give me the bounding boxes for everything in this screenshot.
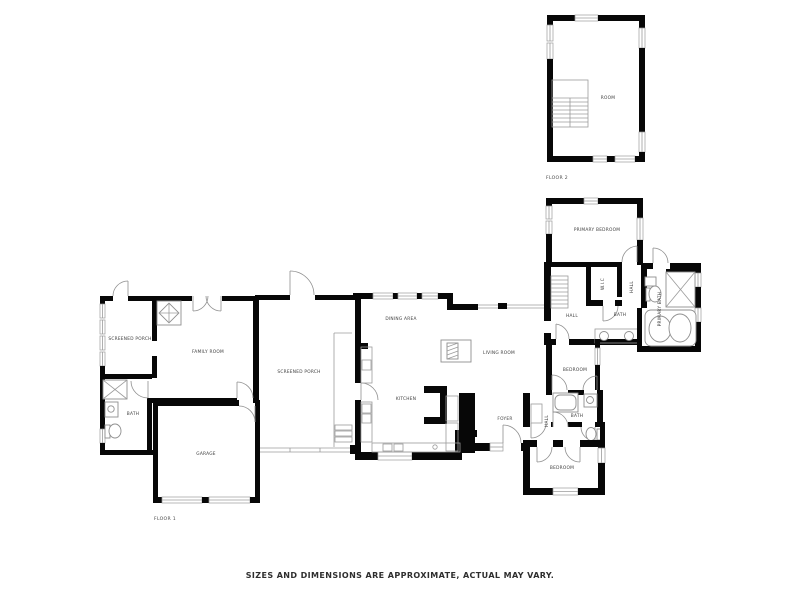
- toilet-bedrooms: [586, 428, 601, 441]
- tub-bedrooms: [553, 393, 578, 412]
- stair-hall-walls: [544, 262, 551, 345]
- room-label-living-room: LIVING ROOM: [483, 350, 515, 356]
- hall-bedrooms-area: [523, 393, 546, 438]
- room-label-bedroom-middle: BEDROOM: [563, 367, 587, 373]
- room-label-foyer: FOYER: [497, 416, 512, 422]
- tub-primary: [645, 310, 696, 346]
- hall-closet: [531, 404, 546, 438]
- room-label-primary-bedroom: PRIMARY BEDROOM: [574, 227, 620, 233]
- room-label-hall-stairs: HALL: [566, 313, 578, 319]
- disclaimer-text: SIZES AND DIMENSIONS ARE APPROXIMATE, AC…: [246, 571, 554, 580]
- screened-porch-west-walls: [100, 281, 157, 379]
- room-label-wic: W.I.C: [600, 278, 606, 290]
- room-label-family-room: FAMILY ROOM: [192, 349, 224, 355]
- floor-plan-svg: ROOM FLOOR 2 SCREENED PORCH: [0, 0, 800, 600]
- floor-plan-page: ROOM FLOOR 2 SCREENED PORCH: [0, 0, 800, 600]
- toilet-west: [105, 424, 121, 438]
- floor1-stairs: [551, 276, 568, 308]
- room-label-floor2-room: ROOM: [601, 95, 615, 101]
- room-label-bedroom-south: BEDROOM: [550, 465, 574, 471]
- shower-primary: [666, 269, 695, 307]
- floor2-plan: ROOM FLOOR 2: [546, 15, 645, 181]
- screened-porch-center: SCREENED PORCH: [255, 271, 361, 454]
- room-label-kitchen: KITCHEN: [396, 396, 416, 402]
- fireplace-living-room: [441, 340, 471, 362]
- floor2-walls: [547, 15, 645, 162]
- bedroom-wing: BEDROOM BATH: [523, 339, 605, 495]
- great-room-walls: [353, 293, 544, 460]
- bath-hall-area: [544, 324, 641, 345]
- room-label-screened-porch-west: SCREENED PORCH: [108, 336, 151, 342]
- room-label-bath-hall: BATH: [614, 312, 626, 318]
- west-wing: SCREENED PORCH FAMILY ROOM: [100, 281, 260, 522]
- fireplace-family-room: [157, 301, 181, 325]
- floor1-caption: FLOOR 1: [154, 516, 176, 522]
- primary-suite: PRIMARY BEDROOM HALL W.I.C HALL: [544, 198, 701, 352]
- room-label-primary-bath: PRIMARY BATH: [657, 292, 663, 327]
- sink-west: [105, 402, 118, 417]
- floor2-stairs: [552, 80, 588, 127]
- sink-bedrooms: [584, 394, 597, 407]
- shower-west: [103, 380, 127, 399]
- room-label-dining-area: DINING AREA: [385, 316, 416, 322]
- great-room: DINING AREA KITCHEN LIVING ROOM: [353, 293, 544, 460]
- bath-bedrooms-area: [551, 393, 605, 447]
- primary-bath-fixtures: [645, 269, 696, 346]
- room-label-bath-west: BATH: [127, 411, 139, 417]
- room-label-garage: GARAGE: [196, 451, 216, 457]
- room-label-hall-closet: HALL: [629, 281, 635, 293]
- room-label-hall-bedrooms: HALL: [544, 415, 550, 427]
- floor2-caption: FLOOR 2: [546, 175, 568, 181]
- room-label-bath-bedrooms: BATH: [571, 413, 583, 419]
- foyer: FOYER: [475, 416, 530, 451]
- room-label-screened-porch-center: SCREENED PORCH: [277, 369, 320, 375]
